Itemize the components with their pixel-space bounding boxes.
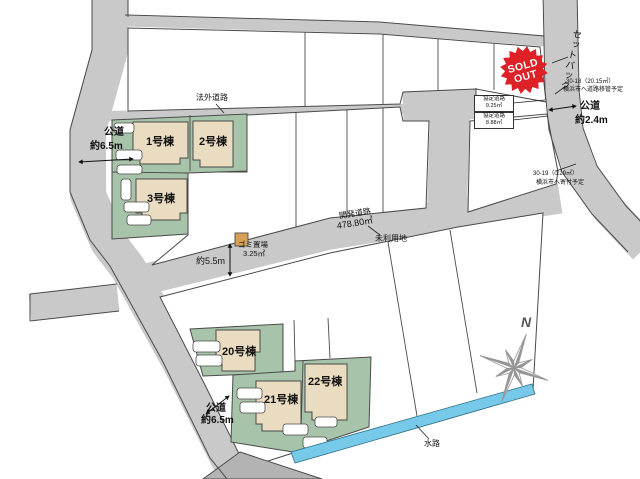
public-road-left-label: 公道 — [104, 128, 124, 138]
car — [124, 202, 149, 212]
waterway-label: 水路 — [424, 440, 440, 448]
building-1-label: 1号棟 — [146, 137, 174, 148]
public-road-bottom-label: 公道 — [206, 404, 226, 414]
car — [193, 341, 220, 352]
garbage-label: ゴミ置場 — [238, 241, 268, 249]
hogai-road-label: 法外道路 — [196, 94, 228, 102]
public-road-right-label: 公道 — [580, 102, 600, 112]
road-t-stem — [447, 110, 450, 210]
lot-30-18-label: 30-18（20.15㎡） — [566, 79, 614, 85]
car — [315, 417, 337, 427]
building-22-label: 22号棟 — [308, 377, 342, 388]
car — [196, 355, 222, 366]
building-21-label: 21号棟 — [264, 395, 298, 406]
garbage-area: 3.25㎡ — [243, 250, 265, 258]
car — [283, 424, 308, 435]
car — [127, 215, 151, 225]
car — [240, 402, 265, 413]
building-22 — [305, 364, 347, 420]
road-left-branch — [30, 298, 118, 307]
car — [121, 179, 131, 200]
building-3-label: 3号棟 — [147, 194, 175, 205]
width-5-5m-label: 約5.5m — [196, 257, 225, 266]
car — [117, 165, 142, 174]
car — [237, 388, 262, 399]
public-road-bottom-width: 約6.5m — [201, 416, 234, 426]
kyotei-road-1-box: 協定道路 9.25㎡ — [474, 95, 514, 112]
lot-30-18-note: 横浜市へ道路移管予定 — [563, 87, 623, 93]
site-plan-drawing: SOLD OUT N — [0, 0, 640, 479]
unused-land-label: 未利用地 — [375, 235, 407, 243]
site-plan: SOLD OUT N 法外道路 公道 約6.5m 1号棟 2号棟 3号棟 20号… — [0, 0, 640, 479]
kyotei-road-2-box: 協定道路 8.88㎡ — [474, 112, 514, 129]
building-2-label: 2号棟 — [199, 137, 227, 148]
public-road-left-width: 約6.5m — [90, 142, 123, 152]
kyotei-road-1-area: 9.25㎡ — [475, 103, 513, 110]
building-20-label: 20号棟 — [222, 347, 256, 358]
compass-north-label: N — [521, 314, 532, 330]
road-t-bar — [403, 104, 476, 107]
public-road-right-width: 約2.4m — [575, 116, 608, 126]
lot-30-19-label: 30-19（0.29㎡） — [533, 171, 578, 177]
kyotei-road-2-area: 8.88㎡ — [475, 120, 513, 127]
lot-30-19-note: 横浜市へ寄付予定 — [536, 180, 584, 186]
